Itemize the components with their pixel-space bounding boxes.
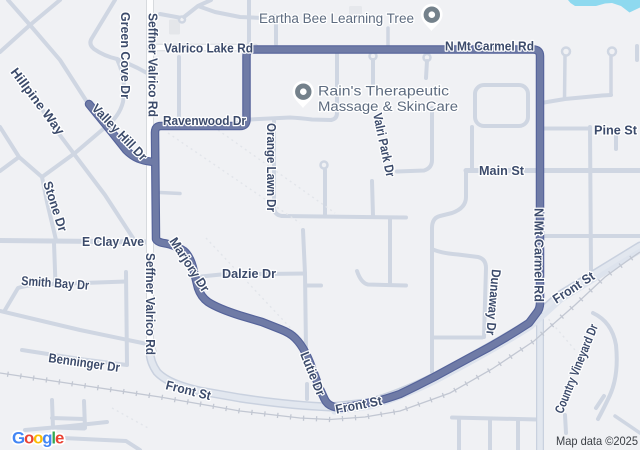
svg-text:Main St: Main St xyxy=(479,163,525,178)
svg-text:Map data ©2025: Map data ©2025 xyxy=(556,434,638,448)
svg-text:Massage & SkinCare: Massage & SkinCare xyxy=(318,99,458,115)
svg-text:Pine St: Pine St xyxy=(594,123,638,138)
svg-text:Dalzie Dr: Dalzie Dr xyxy=(222,266,276,281)
svg-text:Valrico Lake Rd: Valrico Lake Rd xyxy=(164,41,253,56)
svg-text:Green Cove Dr: Green Cove Dr xyxy=(118,12,133,99)
svg-text:Eartha Bee Learning Tree: Eartha Bee Learning Tree xyxy=(259,11,414,27)
svg-text:E Clay Ave: E Clay Ave xyxy=(82,234,144,249)
svg-text:N Mt Carmel Rd: N Mt Carmel Rd xyxy=(532,208,547,302)
svg-text:Google: Google xyxy=(12,429,64,448)
svg-text:Seffner Valrico Rd: Seffner Valrico Rd xyxy=(143,253,158,355)
svg-text:Rain's Therapeutic: Rain's Therapeutic xyxy=(318,84,449,100)
svg-text:Orange Lawn Dr: Orange Lawn Dr xyxy=(264,123,279,212)
svg-text:N Mt Carmel Rd: N Mt Carmel Rd xyxy=(445,39,534,54)
svg-text:Seffner Valrico Rd: Seffner Valrico Rd xyxy=(146,13,161,117)
svg-text:Ravenwood Dr: Ravenwood Dr xyxy=(163,113,246,128)
